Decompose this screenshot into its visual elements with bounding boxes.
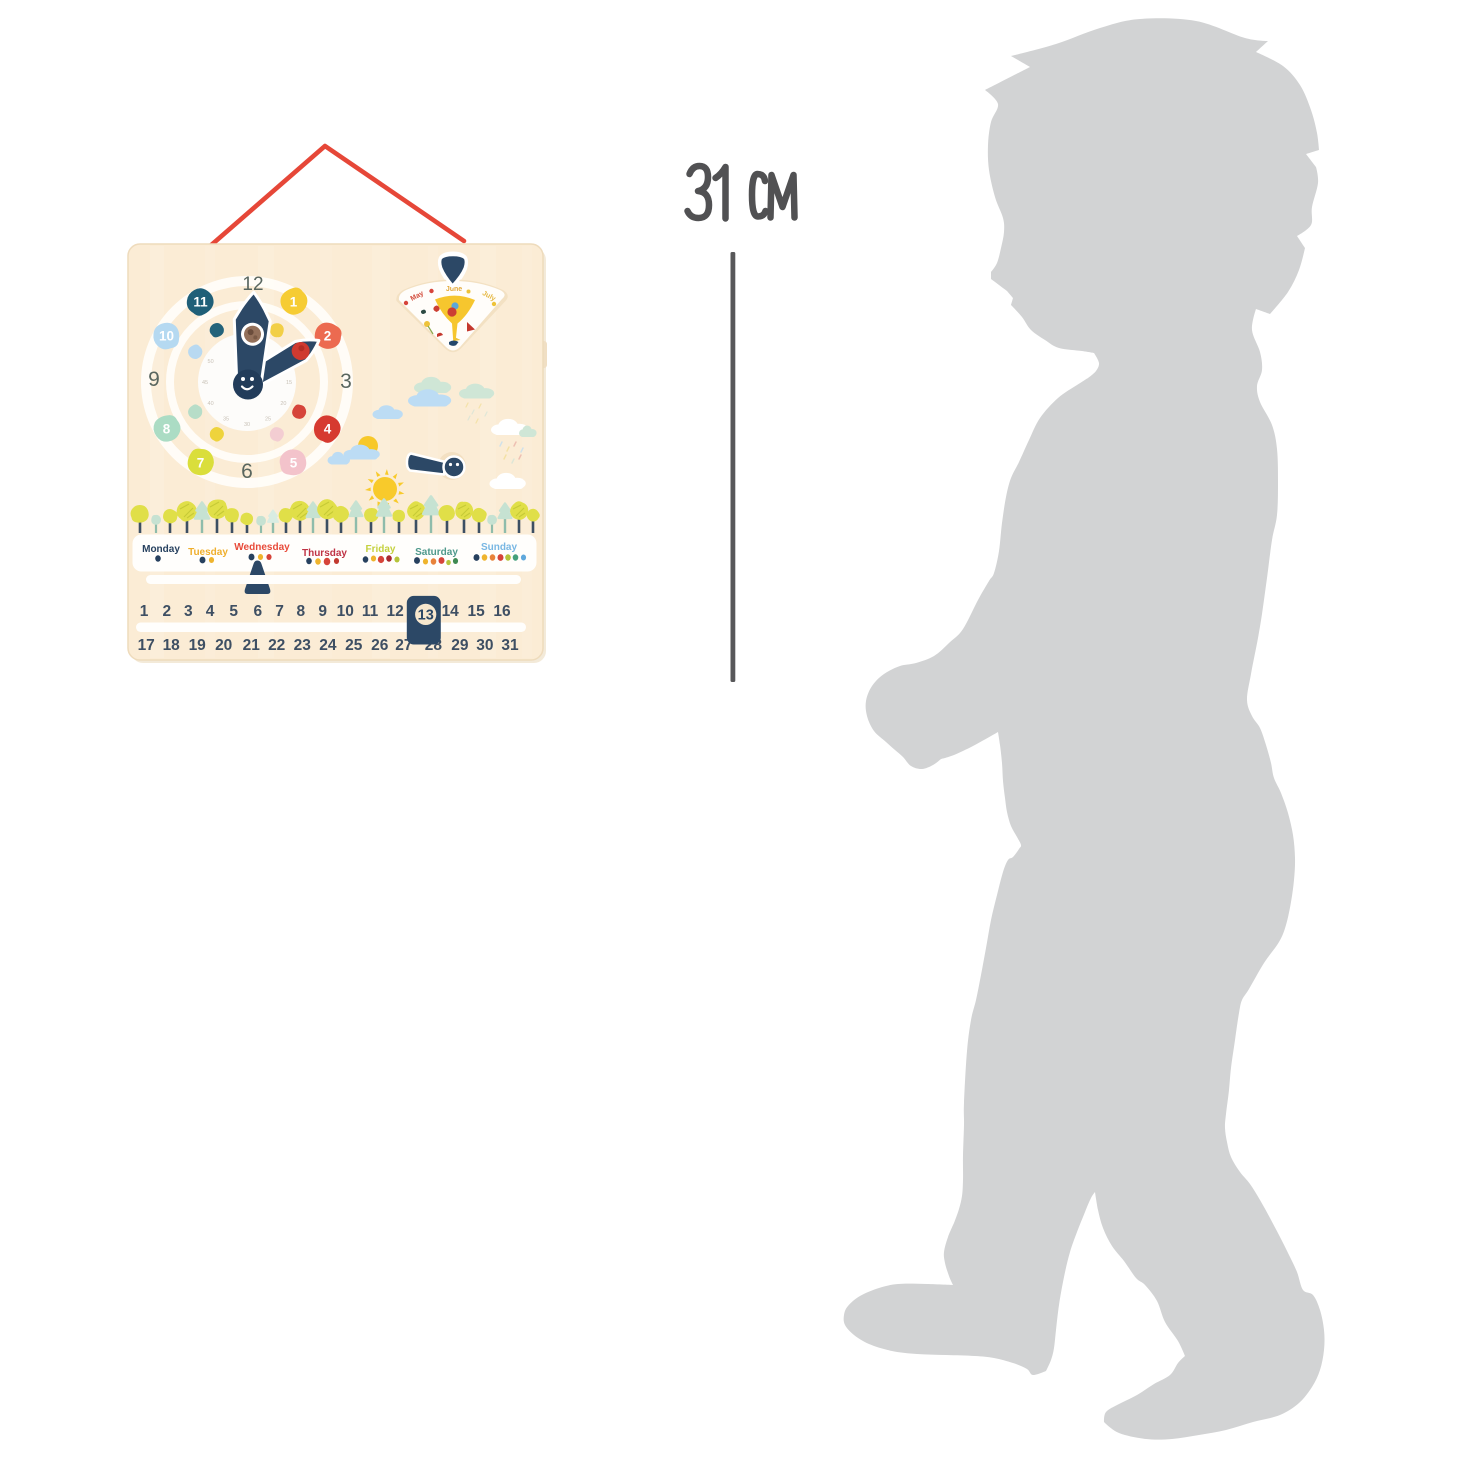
svg-text:4: 4 xyxy=(206,603,215,620)
svg-text:19: 19 xyxy=(189,637,207,654)
svg-text:17: 17 xyxy=(138,637,155,654)
svg-text:23: 23 xyxy=(294,637,312,654)
svg-text:8: 8 xyxy=(296,603,305,620)
svg-text:21: 21 xyxy=(243,637,261,654)
svg-text:2: 2 xyxy=(324,328,332,343)
svg-text:5: 5 xyxy=(290,455,298,470)
svg-text:16: 16 xyxy=(493,603,511,620)
svg-text:18: 18 xyxy=(163,637,181,654)
svg-text:Sunday: Sunday xyxy=(481,542,518,553)
svg-text:40: 40 xyxy=(208,401,214,407)
svg-text:35: 35 xyxy=(223,416,229,422)
svg-text:9: 9 xyxy=(318,603,327,620)
svg-text:25: 25 xyxy=(265,416,271,422)
svg-text:29: 29 xyxy=(451,637,469,654)
svg-text:1: 1 xyxy=(290,294,298,309)
svg-text:22: 22 xyxy=(268,637,285,654)
svg-text:Saturday: Saturday xyxy=(415,547,458,558)
svg-text:20: 20 xyxy=(215,637,232,654)
svg-text:12: 12 xyxy=(386,603,403,620)
svg-text:15: 15 xyxy=(286,380,292,386)
svg-text:June: June xyxy=(446,286,462,293)
svg-text:14: 14 xyxy=(442,603,460,620)
svg-text:11: 11 xyxy=(362,603,379,620)
svg-text:25: 25 xyxy=(345,637,363,654)
svg-text:3: 3 xyxy=(340,370,352,393)
svg-text:31: 31 xyxy=(501,637,519,654)
svg-text:3: 3 xyxy=(184,603,193,620)
svg-text:Wednesday: Wednesday xyxy=(234,542,290,553)
svg-text:6: 6 xyxy=(253,603,262,620)
svg-text:30: 30 xyxy=(244,422,250,428)
svg-text:2: 2 xyxy=(162,603,171,620)
svg-text:10: 10 xyxy=(159,328,174,343)
svg-text:11: 11 xyxy=(193,294,208,309)
svg-text:7: 7 xyxy=(197,455,205,470)
svg-text:1: 1 xyxy=(140,603,149,620)
svg-text:Tuesday: Tuesday xyxy=(188,547,228,558)
svg-text:Monday: Monday xyxy=(142,544,180,555)
svg-text:26: 26 xyxy=(371,637,389,654)
svg-text:45: 45 xyxy=(202,380,208,386)
svg-text:6: 6 xyxy=(241,460,253,483)
svg-text:10: 10 xyxy=(337,603,354,620)
svg-text:13: 13 xyxy=(418,608,434,624)
svg-text:24: 24 xyxy=(319,637,337,654)
svg-text:8: 8 xyxy=(163,421,171,436)
svg-text:50: 50 xyxy=(208,359,214,365)
svg-text:5: 5 xyxy=(229,603,238,620)
svg-text:15: 15 xyxy=(467,603,485,620)
svg-text:9: 9 xyxy=(148,368,160,391)
svg-text:Friday: Friday xyxy=(365,544,395,555)
svg-text:20: 20 xyxy=(280,401,286,407)
svg-text:30: 30 xyxy=(476,637,493,654)
svg-text:7: 7 xyxy=(275,603,284,620)
svg-text:4: 4 xyxy=(324,421,332,436)
svg-text:Thursday: Thursday xyxy=(302,548,347,559)
